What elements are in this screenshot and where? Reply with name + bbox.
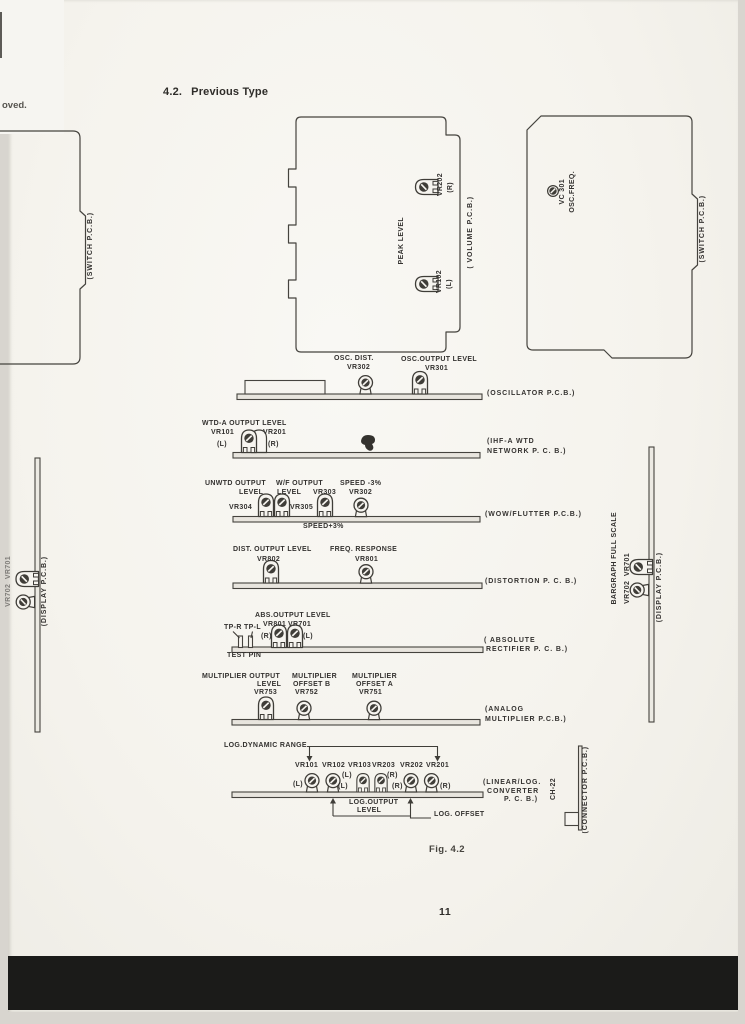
scan-black-bar [8, 956, 738, 1010]
abs-vr801-label: VR801 [263, 621, 286, 629]
abs-output-level-label: ABS.OUTPUT LEVEL [255, 612, 331, 620]
trimmer-icon [357, 774, 369, 792]
ihf-pcb-label-line1: (IHF-A WTD [487, 438, 535, 446]
multiplier-output-level-label: LEVEL [257, 681, 281, 689]
oscillator-pcb-label: (OSCILLATOR P.C.B.) [487, 390, 575, 398]
switch-left-pcb-label: (SWITCH P.C.B.) [87, 212, 95, 279]
vr201-label: VR201 [263, 429, 286, 437]
vr101-label: VR101 [211, 429, 234, 437]
lin-channel-r: (R) [392, 783, 403, 791]
wow-vr302-label: VR302 [349, 489, 372, 497]
vr201-channel: (R) [268, 441, 279, 449]
switch-right-pcb-outline [527, 116, 698, 358]
linlog-pcb-label-line3: P. C. B.) [504, 796, 538, 804]
analog-pcb-label-line1: (ANALOG [485, 706, 524, 714]
trimmer-icon [297, 701, 311, 719]
linear-log-pcb-bar [232, 792, 483, 798]
log-output-level-label: LEVEL [357, 807, 381, 815]
log-offset-label: LOG. OFFSET [434, 811, 485, 819]
abs-vr701-channel: (L) [303, 633, 313, 641]
absolute-rectifier-pcb-bar [232, 647, 483, 653]
offset-a-label: OFFSET A [356, 681, 393, 689]
lin-vr202-label: VR202 [400, 762, 423, 770]
trimmer-icon [275, 494, 290, 517]
display-left-pcb-bar [35, 458, 40, 732]
trimmer-icon [416, 180, 439, 195]
lin-channel-l: (L) [293, 781, 303, 789]
vr301-label: VR301 [425, 365, 448, 373]
display-left-pcb-label: (DISPLAY P.C.B.) [41, 556, 49, 626]
trimmer-icon [318, 494, 333, 517]
lin-vr203-label: VR203 [372, 762, 395, 770]
vr802-label: VR802 [257, 556, 280, 564]
vr752-label: VR752 [295, 689, 318, 697]
pcb-diagram-layer [0, 0, 745, 1024]
trimmer-icon [354, 498, 368, 516]
lin-vr102-label: VR102 [322, 762, 345, 770]
multiplier-b-label: MULTIPLIER [292, 673, 337, 681]
display-right-trimmer-ids: VR702 VR701 [624, 553, 632, 604]
vr202-channel: (R) [447, 182, 455, 193]
wow-flutter-pcb-bar [233, 517, 480, 523]
display-left-trimmer-ids: VR702 VR701 [5, 556, 13, 607]
freq-response-label: FREQ. RESPONSE [330, 546, 397, 554]
unwtd-level-label: LEVEL [239, 489, 263, 497]
display-right-pcb-label: (DISPLAY P.C.B.) [656, 552, 664, 622]
ch22-label: CH-22 [550, 778, 558, 800]
volume-pcb-label: ( VOLUME P.C.B.) [467, 196, 475, 269]
peak-level-silkscreen: PEAK LEVEL [398, 217, 406, 264]
vc301-function: OSC.FREQ. [569, 171, 577, 213]
distortion-pcb-bar [233, 583, 482, 589]
trimmer-icon [305, 774, 319, 792]
vr304-label: VR304 [229, 504, 252, 512]
bargraph-full-scale-label: BARGRAPH FULL SCALE [611, 512, 619, 604]
speed-plus-label: SPEED+3% [303, 523, 344, 531]
linlog-pcb-label-line2: CONVERTER [487, 788, 539, 796]
trimmer-icon [242, 430, 257, 453]
trimmer-icon [259, 697, 274, 720]
abs-vr701-label: VR701 [288, 621, 311, 629]
vr102-label: VR102 [436, 270, 444, 293]
vr303-label: VR303 [313, 489, 336, 497]
vr302-label: VR302 [347, 364, 370, 372]
vr305-label: VR305 [290, 504, 313, 512]
log-output-label: LOG.OUTPUT [349, 799, 398, 807]
display-right-pcb-bar [649, 447, 654, 722]
oscillator-component-box [245, 381, 325, 395]
vr102-channel: (L) [446, 279, 454, 289]
trimmer-icon [630, 560, 653, 575]
connector-pcb-label: (CONNECTOR P.C.B.) [582, 746, 590, 834]
ihf-pcb-label-line2: NETWORK P. C. B.) [487, 448, 566, 456]
absolute-pcb-label-line1: ( ABSOLUTE [484, 637, 536, 645]
speed-minus-label: SPEED -3% [340, 480, 381, 488]
lin-vr103-label: VR103 [348, 762, 371, 770]
test-pin-label: TEST PIN [227, 652, 261, 660]
abs-vr801-channel: (R) [261, 633, 272, 641]
trimmer-screw-icon [548, 186, 559, 197]
osc-dist-label: OSC. DIST. [334, 355, 374, 363]
analog-pcb-label-line2: MULTIPLIER P.C.B.) [485, 716, 567, 724]
log-dynamic-range-bracket [307, 747, 441, 762]
trimmer-icon [425, 774, 439, 792]
linlog-pcb-label-line1: (LINEAR/LOG. [483, 779, 541, 787]
lin-channel-r: (R) [387, 772, 398, 780]
volume-pcb-outline [289, 117, 461, 352]
trimmer-icon [16, 595, 34, 609]
trimmer-icon [413, 372, 428, 395]
lin-channel-l: (L) [342, 772, 352, 780]
vr202-label: VR202 [437, 173, 445, 196]
tp-labels: TP-R TP-L [224, 624, 261, 632]
multiplier-output-label: MULTIPLIER OUTPUT [202, 673, 280, 681]
scanned-page: oved. 4.2. Previous Type [0, 0, 745, 1024]
wtd-a-output-level-label: WTD-A OUTPUT LEVEL [202, 420, 287, 428]
lin-vr201-label: VR201 [426, 762, 449, 770]
trimmer-icon [367, 701, 381, 719]
trimmer-icon [16, 572, 39, 587]
multiplier-a-label: MULTIPLIER [352, 673, 397, 681]
trimmer-icon [359, 565, 373, 583]
analog-multiplier-pcb-bar [232, 720, 480, 726]
ihf-pcb-bar [233, 453, 480, 459]
wf-output-label: W/F OUTPUT [276, 480, 323, 488]
trimmer-icon [404, 774, 418, 792]
connector-socket [565, 813, 579, 826]
oscillator-pcb-bar [237, 394, 482, 400]
offset-b-label: OFFSET B [293, 681, 330, 689]
vr801-label: VR801 [355, 556, 378, 564]
log-dynamic-range-label: LOG.DYNAMIC RANGE [224, 742, 307, 750]
page-number: 11 [439, 906, 451, 918]
vr101-channel: (L) [217, 441, 227, 449]
lin-channel-l: (L) [338, 783, 348, 791]
osc-output-level-label: OSC.OUTPUT LEVEL [401, 356, 477, 364]
trimmer-icon [630, 583, 648, 597]
distortion-pcb-label: (DISTORTION P. C. B.) [485, 578, 577, 586]
switch-left-pcb-outline [0, 131, 86, 364]
screw-blob [361, 435, 375, 451]
tp-r-arrow [233, 632, 240, 639]
lin-vr101-label: VR101 [295, 762, 318, 770]
vr753-label: VR753 [254, 689, 277, 697]
trimmer-icon [359, 376, 373, 394]
vr751-label: VR751 [359, 689, 382, 697]
figure-caption: Fig. 4.2 [429, 844, 465, 855]
dist-output-level-label: DIST. OUTPUT LEVEL [233, 546, 312, 554]
unwtd-output-label: UNWTD OUTPUT [205, 480, 266, 488]
trimmer-icon [259, 494, 274, 517]
switch-right-pcb-label: (SWITCH P.C.B.) [699, 195, 707, 262]
wf-level-label: LEVEL [277, 489, 301, 497]
lin-channel-r: (R) [440, 783, 451, 791]
trimmer-icon [416, 277, 439, 292]
absolute-pcb-label-line2: RECTIFIER P. C. B.) [486, 646, 568, 654]
wow-flutter-pcb-label: (WOW/FLUTTER P.C.B.) [485, 511, 582, 519]
vc301-label: VC 301 [559, 179, 567, 204]
trimmer-icon [375, 774, 387, 792]
